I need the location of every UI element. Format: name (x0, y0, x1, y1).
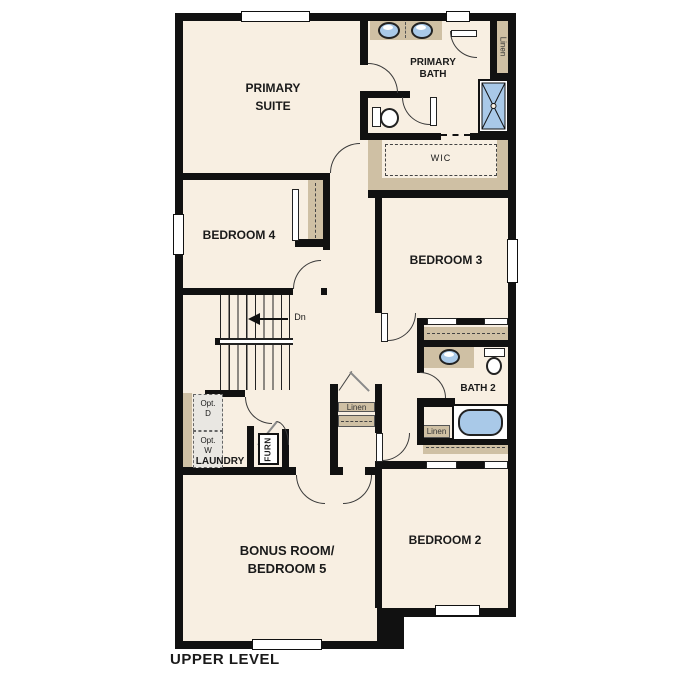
door-swing-arc (293, 260, 321, 289)
closet-label-linen-primary: Linen (497, 25, 508, 69)
wic-shelf-right (497, 140, 508, 178)
wall (330, 384, 338, 470)
window (252, 639, 322, 650)
stair-treads-lower (220, 343, 290, 390)
bathtub (458, 409, 503, 436)
toilet-bowl (486, 357, 502, 375)
closet-rod-dash (426, 447, 505, 448)
wic-entry-dashes (441, 134, 470, 136)
sink-highlight (383, 25, 393, 30)
door-swing-arc (402, 97, 430, 125)
window (435, 605, 480, 616)
wall (175, 13, 183, 649)
wall (375, 461, 382, 608)
floorplan: Dn Opt. D Opt. W FURN PRIMARY SUITE PRIM… (175, 13, 516, 649)
optional-dryer-box: Opt. D (193, 394, 223, 431)
wall (508, 13, 516, 617)
wall (183, 173, 330, 180)
shower (478, 79, 509, 133)
bifold-door (349, 371, 370, 392)
window (241, 11, 310, 22)
sink-highlight (444, 352, 454, 357)
wic-shelf-bottom (368, 178, 508, 190)
floorplan-page: { "plan": { "title": "UPPER LEVEL", "roo… (0, 0, 687, 687)
stair-rail-newel (215, 338, 220, 345)
room-label-laundry: LAUNDRY (188, 455, 252, 468)
door-swing-arc (343, 475, 372, 504)
door-leaf (376, 433, 383, 462)
wall (175, 288, 293, 295)
closet-rod-dash (341, 421, 372, 422)
door-swing-arc (388, 313, 416, 341)
sink (411, 22, 433, 39)
closet-label-linen-hall: Linen (338, 403, 375, 413)
closet-rod-dash (315, 183, 316, 238)
wall (321, 288, 327, 295)
furnace-label: FURN (264, 437, 273, 461)
washer-label-line1: Opt. (194, 436, 222, 446)
stair-arrowhead-icon (248, 313, 260, 325)
door-leaf (451, 30, 477, 37)
wall (377, 608, 404, 649)
sink-highlight (416, 25, 426, 30)
wall (368, 190, 516, 198)
exterior-mask (404, 617, 516, 649)
wall (470, 133, 516, 140)
wall (295, 239, 330, 247)
toilet-tank (484, 348, 505, 357)
room-label-primary-bath: PRIMARY BATH (373, 57, 493, 81)
vanity-divider-dash (405, 22, 406, 38)
room-label-bedroom4: BEDROOM 4 (183, 228, 295, 244)
stair-direction-label: Dn (289, 312, 311, 324)
room-label-primary-suite: PRIMARY SUITE (203, 79, 343, 115)
closet-label-linen-bath2: Linen (423, 427, 450, 437)
room-label-bonus: BONUS ROOM/ BEDROOM 5 (212, 542, 362, 578)
sink (439, 349, 460, 365)
stair-rail (217, 338, 293, 345)
room-label-bath2: BATH 2 (438, 382, 518, 395)
plan-title: UPPER LEVEL (170, 651, 280, 668)
door-swing-arc (245, 397, 272, 424)
door-swing-arc (382, 433, 410, 461)
furnace-box: FURN (258, 433, 279, 465)
room-label-wic: WIC (391, 153, 491, 165)
window (446, 11, 470, 22)
wall (360, 21, 368, 65)
wall (375, 198, 382, 313)
room-label-bedroom2: BEDROOM 2 (385, 533, 505, 549)
wall (360, 133, 441, 140)
wall (183, 467, 296, 475)
closet-bypass-door (484, 318, 508, 325)
closet-rod-dash (427, 333, 505, 334)
wall (375, 384, 382, 433)
stair-direction-arrow (259, 318, 288, 320)
dryer-label-line1: Opt. (194, 399, 222, 409)
window (507, 239, 518, 283)
door-leaf (430, 97, 437, 126)
door-swing-arc (296, 475, 325, 504)
closet-bypass-door (426, 461, 457, 469)
sink (378, 22, 400, 39)
wall (365, 467, 382, 475)
closet-bypass-door (484, 461, 508, 469)
toilet-bowl (380, 108, 399, 128)
wall (382, 461, 417, 469)
room-label-bedroom3: BEDROOM 3 (386, 253, 506, 269)
door-leaf (381, 313, 388, 342)
closet-bypass-door (427, 318, 457, 325)
door-swing-arc (330, 143, 360, 173)
dryer-label-line2: D (194, 409, 222, 419)
wall (417, 340, 516, 347)
